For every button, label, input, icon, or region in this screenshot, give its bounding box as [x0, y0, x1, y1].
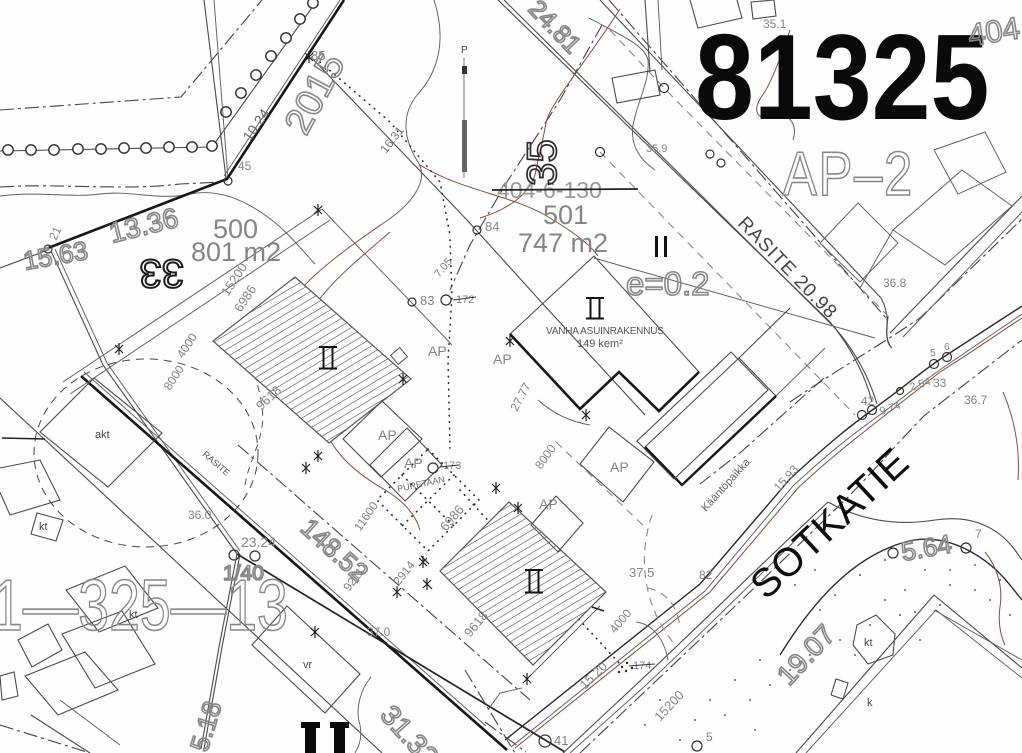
- svg-text:36.7: 36.7: [964, 393, 988, 407]
- svg-text:5: 5: [930, 348, 936, 359]
- svg-text:36.0: 36.0: [188, 508, 212, 522]
- svg-text:VANHA ASUINRAKENNUS: VANHA ASUINRAKENNUS: [546, 326, 664, 337]
- svg-text:6: 6: [944, 342, 950, 353]
- svg-text:82: 82: [699, 568, 713, 582]
- svg-text:747 m2: 747 m2: [518, 228, 608, 258]
- svg-text:45: 45: [238, 159, 252, 173]
- svg-text:37.5: 37.5: [629, 565, 654, 580]
- svg-text:AP: AP: [428, 343, 447, 359]
- svg-text:kt: kt: [39, 521, 48, 533]
- svg-text:5: 5: [706, 730, 713, 744]
- svg-text:AP: AP: [404, 455, 423, 471]
- svg-text:84: 84: [485, 219, 499, 234]
- svg-text:AP: AP: [610, 459, 629, 475]
- svg-text:k: k: [867, 697, 873, 709]
- svg-text:akt: akt: [95, 429, 110, 441]
- svg-text:172: 172: [456, 294, 474, 306]
- svg-text:1—325—13: 1—325—13: [0, 565, 288, 646]
- svg-text:149 kem²: 149 kem²: [577, 338, 623, 350]
- svg-text:81325: 81325: [695, 10, 989, 146]
- svg-text:41: 41: [554, 733, 568, 748]
- svg-text:501: 501: [543, 200, 588, 230]
- svg-text:P: P: [461, 45, 468, 56]
- svg-text:AP: AP: [539, 496, 558, 512]
- svg-text:AP–2: AP–2: [783, 140, 914, 209]
- svg-text:AP: AP: [378, 427, 397, 443]
- svg-text:36.8: 36.8: [883, 276, 907, 290]
- svg-text:33: 33: [140, 251, 185, 295]
- svg-text:83: 83: [420, 293, 434, 308]
- svg-text:23.24: 23.24: [241, 534, 276, 550]
- svg-text:35: 35: [518, 139, 565, 186]
- svg-text:35.9: 35.9: [646, 143, 667, 155]
- svg-text:37.0: 37.0: [367, 625, 391, 639]
- svg-text:7: 7: [975, 527, 982, 541]
- svg-text:33: 33: [933, 376, 947, 390]
- svg-text:AP: AP: [493, 351, 512, 367]
- svg-text:e=0.2: e=0.2: [626, 265, 710, 302]
- svg-text:kt: kt: [864, 637, 873, 649]
- svg-text:35.1: 35.1: [763, 17, 787, 31]
- svg-text:vr: vr: [303, 659, 313, 671]
- svg-text:174: 174: [633, 660, 651, 672]
